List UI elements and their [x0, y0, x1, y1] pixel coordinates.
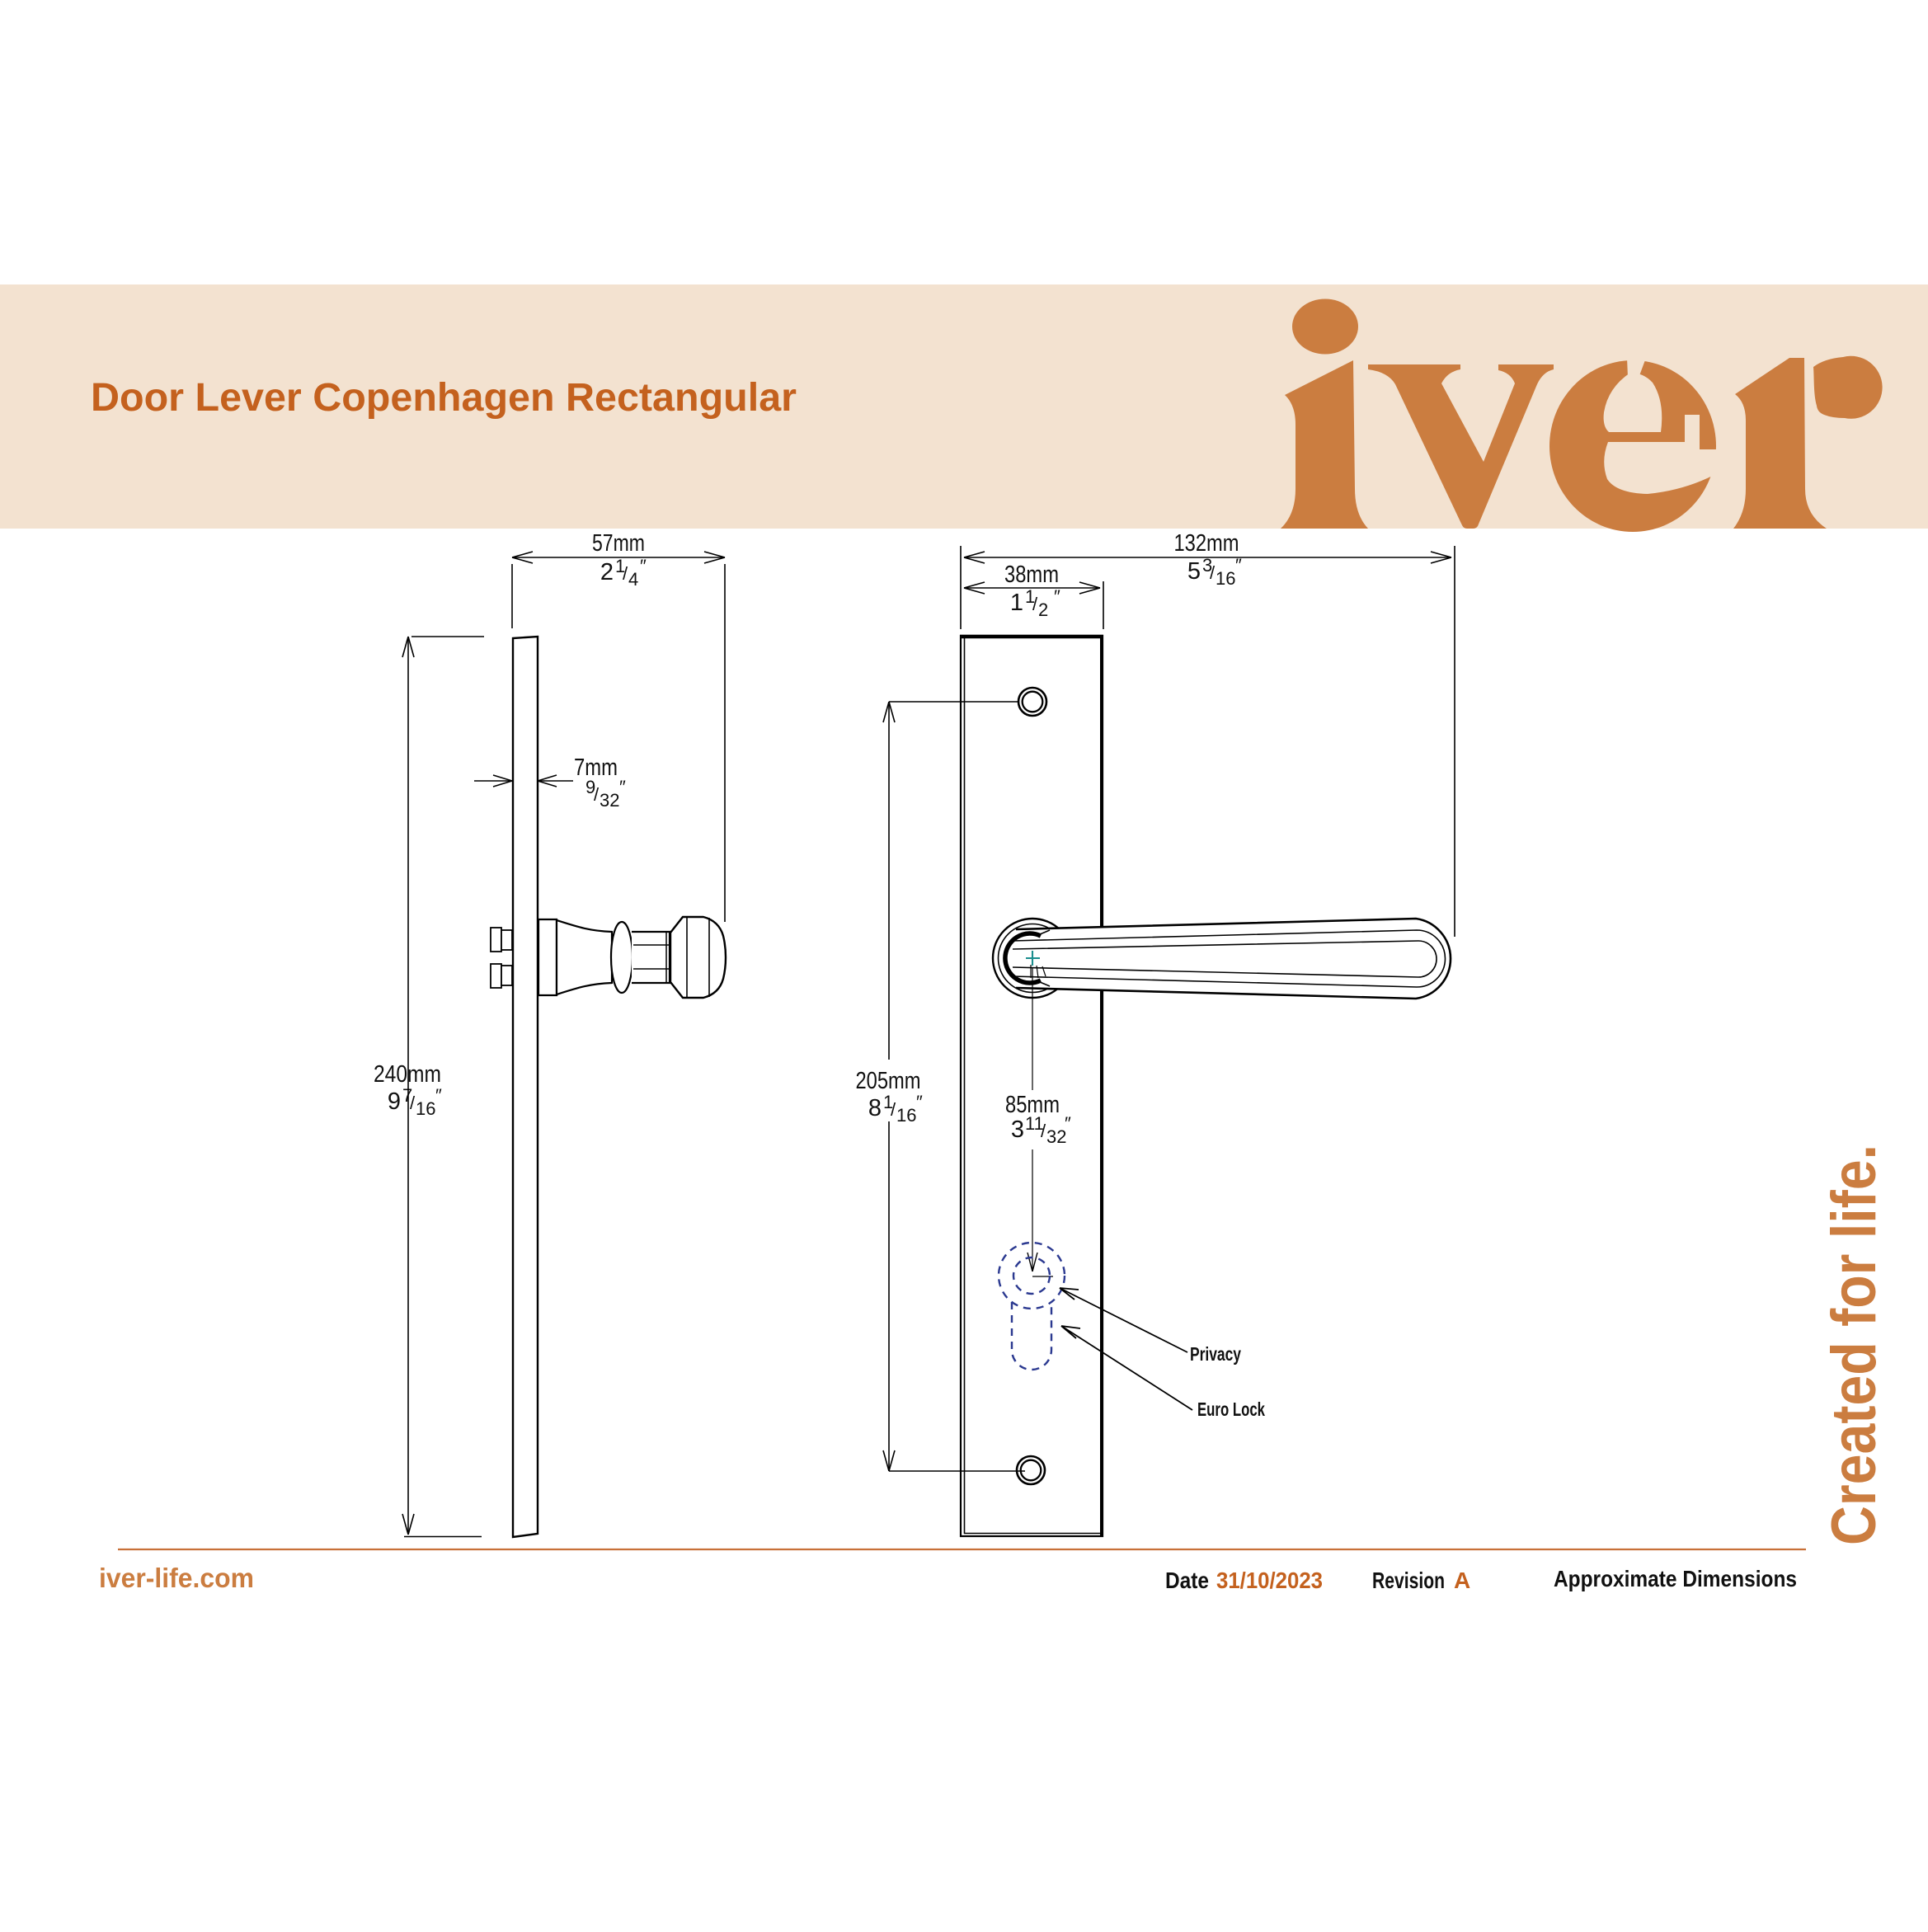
svg-text:32: 32: [600, 790, 619, 811]
svg-text:Door Lever Copenhagen Rectangu: Door Lever Copenhagen Rectangular: [91, 376, 797, 420]
svg-text:16: 16: [1216, 568, 1235, 589]
svg-text:2: 2: [1038, 599, 1048, 620]
svg-text:Approximate Dimensions: Approximate Dimensions: [1554, 1566, 1797, 1591]
svg-text:7mm: 7mm: [574, 754, 618, 781]
svg-text:2: 2: [600, 559, 614, 585]
svg-text:″: ″: [435, 1085, 442, 1106]
svg-text:8: 8: [868, 1095, 882, 1121]
svg-text:4: 4: [628, 569, 638, 590]
svg-text:″: ″: [1065, 1113, 1071, 1134]
svg-text:Euro Lock: Euro Lock: [1197, 1398, 1265, 1420]
svg-text:/: /: [1041, 1121, 1046, 1141]
svg-text:31/10/2023: 31/10/2023: [1216, 1568, 1323, 1593]
svg-text:/: /: [1032, 594, 1038, 614]
svg-text:132mm: 132mm: [1174, 530, 1239, 557]
svg-text:″: ″: [640, 556, 647, 576]
svg-text:38mm: 38mm: [1004, 562, 1059, 588]
svg-text:″: ″: [1054, 586, 1060, 607]
svg-text:/: /: [891, 1099, 896, 1120]
svg-text:205mm: 205mm: [856, 1068, 921, 1094]
svg-text:Created for life.: Created for life.: [1819, 1145, 1889, 1545]
svg-text:16: 16: [416, 1098, 435, 1119]
svg-text:16: 16: [896, 1105, 916, 1126]
svg-text:32: 32: [1046, 1126, 1066, 1147]
svg-text:Date: Date: [1165, 1568, 1209, 1593]
svg-text:″: ″: [619, 777, 626, 797]
svg-text:A: A: [1454, 1568, 1470, 1593]
svg-text:Revision: Revision: [1372, 1568, 1445, 1593]
svg-text:1: 1: [1010, 590, 1023, 616]
svg-text:/: /: [1210, 562, 1216, 583]
svg-text:9: 9: [388, 1088, 401, 1115]
svg-text:5: 5: [1187, 558, 1201, 585]
svg-text:240mm: 240mm: [374, 1061, 441, 1088]
svg-text:/: /: [410, 1093, 416, 1113]
svg-text:/: /: [623, 563, 628, 584]
svg-text:/: /: [594, 784, 600, 805]
svg-text:″: ″: [916, 1092, 923, 1112]
svg-text:Privacy: Privacy: [1190, 1343, 1241, 1365]
svg-text:3: 3: [1011, 1116, 1024, 1143]
svg-text:57mm: 57mm: [592, 530, 645, 557]
svg-text:iver-life.com: iver-life.com: [99, 1563, 254, 1593]
